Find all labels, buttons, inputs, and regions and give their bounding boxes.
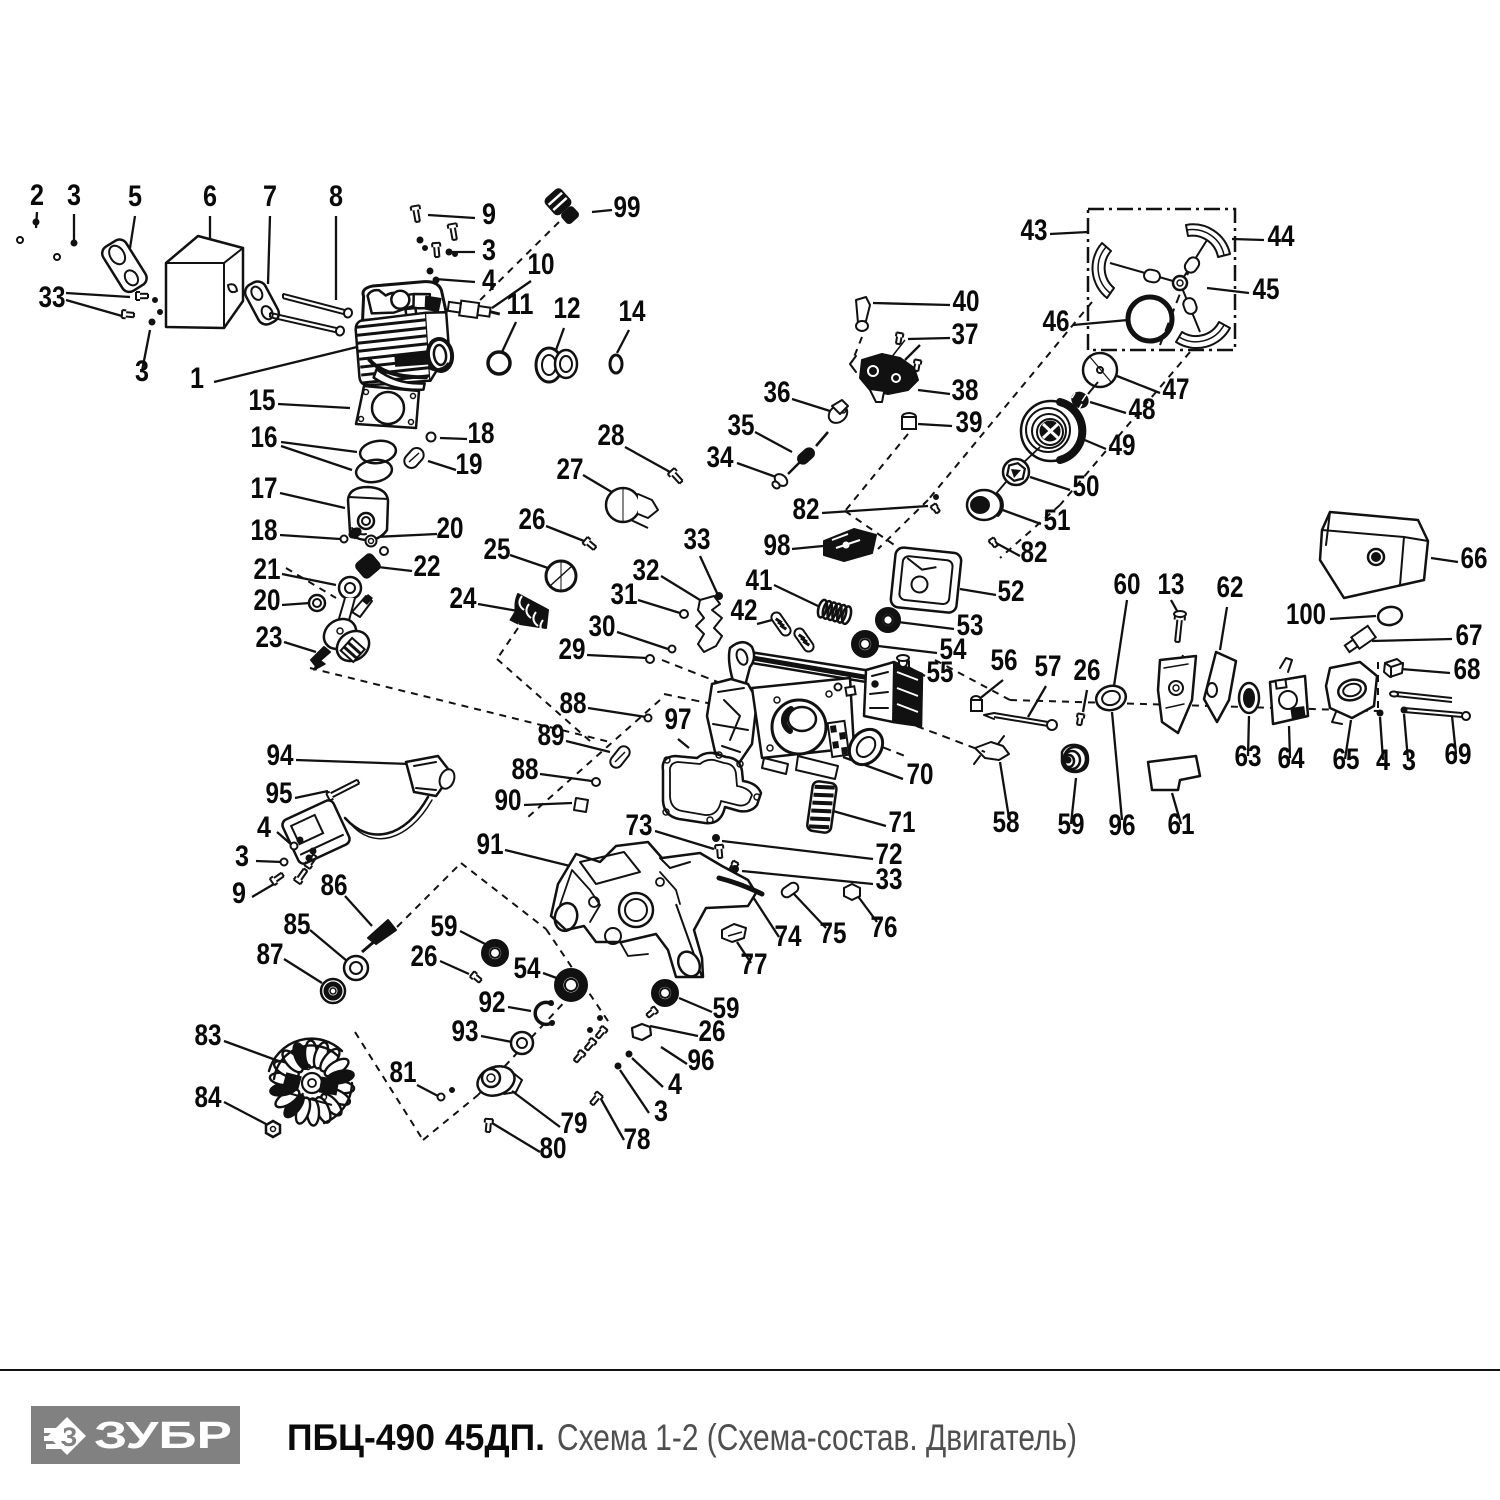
svg-text:97: 97 bbox=[665, 703, 692, 736]
svg-text:63: 63 bbox=[1235, 740, 1262, 773]
svg-text:4: 4 bbox=[257, 811, 271, 844]
svg-text:38: 38 bbox=[952, 374, 979, 407]
svg-text:65: 65 bbox=[1333, 743, 1360, 776]
svg-text:11: 11 bbox=[507, 288, 534, 321]
svg-text:26: 26 bbox=[411, 940, 438, 973]
svg-text:75: 75 bbox=[820, 917, 847, 950]
svg-text:3: 3 bbox=[654, 1095, 668, 1128]
svg-text:48: 48 bbox=[1129, 393, 1156, 426]
svg-text:29: 29 bbox=[559, 633, 586, 666]
svg-text:78: 78 bbox=[624, 1123, 651, 1156]
svg-text:51: 51 bbox=[1044, 504, 1071, 537]
svg-text:91: 91 bbox=[477, 828, 504, 861]
svg-text:59: 59 bbox=[431, 910, 458, 943]
svg-text:18: 18 bbox=[468, 417, 495, 450]
svg-text:35: 35 bbox=[728, 409, 755, 442]
svg-text:4: 4 bbox=[1376, 744, 1390, 777]
svg-text:18: 18 bbox=[251, 514, 278, 547]
svg-text:36: 36 bbox=[764, 376, 791, 409]
svg-text:74: 74 bbox=[775, 920, 802, 953]
svg-text:67: 67 bbox=[1456, 619, 1483, 652]
svg-text:89: 89 bbox=[538, 719, 565, 752]
svg-text:2: 2 bbox=[30, 179, 44, 212]
svg-text:3: 3 bbox=[67, 179, 81, 212]
svg-text:88: 88 bbox=[560, 687, 587, 720]
svg-text:45: 45 bbox=[1253, 273, 1280, 306]
svg-text:88: 88 bbox=[512, 753, 539, 786]
svg-text:95: 95 bbox=[266, 777, 293, 810]
svg-text:26: 26 bbox=[1074, 654, 1101, 687]
svg-text:14: 14 bbox=[619, 295, 646, 328]
svg-text:3: 3 bbox=[482, 234, 496, 267]
svg-text:70: 70 bbox=[907, 758, 934, 791]
svg-text:32: 32 bbox=[633, 554, 660, 587]
svg-text:47: 47 bbox=[1163, 373, 1190, 406]
svg-text:21: 21 bbox=[254, 553, 281, 586]
svg-text:42: 42 bbox=[731, 594, 758, 627]
svg-text:58: 58 bbox=[993, 806, 1020, 839]
svg-text:84: 84 bbox=[195, 1081, 222, 1114]
svg-text:99: 99 bbox=[614, 191, 641, 224]
svg-text:4: 4 bbox=[668, 1068, 682, 1101]
svg-text:80: 80 bbox=[540, 1132, 567, 1165]
svg-text:25: 25 bbox=[484, 533, 511, 566]
svg-text:9: 9 bbox=[482, 198, 496, 231]
svg-text:49: 49 bbox=[1109, 429, 1136, 462]
svg-text:76: 76 bbox=[871, 911, 898, 944]
svg-text:24: 24 bbox=[450, 582, 477, 615]
svg-text:41: 41 bbox=[746, 564, 773, 597]
svg-text:10: 10 bbox=[528, 248, 555, 281]
svg-text:68: 68 bbox=[1454, 653, 1481, 686]
svg-text:55: 55 bbox=[927, 656, 954, 689]
svg-text:71: 71 bbox=[889, 806, 916, 839]
svg-text:8: 8 bbox=[329, 180, 343, 213]
svg-text:Схема 1-2 (Схема-состав. Двига: Схема 1-2 (Схема-состав. Двигатель) bbox=[557, 1417, 1077, 1458]
svg-text:9: 9 bbox=[232, 877, 246, 910]
svg-text:20: 20 bbox=[254, 584, 281, 617]
svg-text:90: 90 bbox=[495, 784, 522, 817]
svg-text:19: 19 bbox=[456, 448, 483, 481]
svg-text:82: 82 bbox=[793, 493, 820, 526]
svg-text:100: 100 bbox=[1286, 598, 1326, 631]
svg-text:23: 23 bbox=[256, 621, 283, 654]
svg-text:3: 3 bbox=[135, 355, 149, 388]
svg-text:40: 40 bbox=[953, 285, 980, 318]
svg-text:5: 5 bbox=[128, 180, 142, 213]
svg-text:33: 33 bbox=[684, 523, 711, 556]
svg-text:93: 93 bbox=[452, 1015, 479, 1048]
svg-text:57: 57 bbox=[1035, 650, 1062, 683]
svg-text:4: 4 bbox=[482, 264, 496, 297]
svg-text:16: 16 bbox=[251, 421, 278, 454]
svg-text:44: 44 bbox=[1268, 220, 1295, 253]
svg-text:1: 1 bbox=[190, 362, 204, 395]
svg-text:50: 50 bbox=[1073, 470, 1100, 503]
svg-text:60: 60 bbox=[1114, 568, 1141, 601]
svg-text:59: 59 bbox=[1058, 808, 1085, 841]
svg-text:61: 61 bbox=[1168, 808, 1195, 841]
svg-text:17: 17 bbox=[251, 472, 278, 505]
svg-text:15: 15 bbox=[249, 384, 276, 417]
svg-text:98: 98 bbox=[764, 529, 791, 562]
svg-text:13: 13 bbox=[1158, 568, 1185, 601]
svg-text:72: 72 bbox=[876, 838, 903, 871]
svg-text:73: 73 bbox=[626, 809, 653, 842]
svg-text:3: 3 bbox=[1402, 744, 1416, 777]
svg-text:56: 56 bbox=[991, 644, 1018, 677]
svg-text:83: 83 bbox=[195, 1019, 222, 1052]
svg-text:69: 69 bbox=[1445, 738, 1472, 771]
svg-text:64: 64 bbox=[1278, 742, 1305, 775]
svg-text:92: 92 bbox=[479, 986, 506, 1019]
svg-text:82: 82 bbox=[1021, 536, 1048, 569]
svg-text:28: 28 bbox=[598, 419, 625, 452]
svg-text:77: 77 bbox=[741, 948, 768, 981]
svg-text:12: 12 bbox=[554, 292, 581, 325]
svg-text:34: 34 bbox=[707, 441, 734, 474]
svg-text:52: 52 bbox=[998, 575, 1025, 608]
svg-text:ПБЦ-490 45ДП.: ПБЦ-490 45ДП. bbox=[287, 1417, 545, 1458]
svg-text:6: 6 bbox=[203, 180, 217, 213]
svg-text:43: 43 bbox=[1021, 214, 1048, 247]
svg-text:37: 37 bbox=[952, 318, 979, 351]
svg-text:20: 20 bbox=[437, 512, 464, 545]
svg-text:59: 59 bbox=[713, 992, 740, 1025]
svg-text:30: 30 bbox=[589, 610, 616, 643]
svg-text:27: 27 bbox=[557, 453, 584, 486]
svg-text:54: 54 bbox=[514, 952, 541, 985]
svg-text:7: 7 bbox=[263, 180, 277, 213]
svg-text:96: 96 bbox=[688, 1044, 715, 1077]
svg-text:39: 39 bbox=[956, 406, 983, 439]
svg-text:87: 87 bbox=[257, 938, 284, 971]
svg-text:86: 86 bbox=[321, 869, 348, 902]
svg-text:81: 81 bbox=[390, 1056, 417, 1089]
svg-text:96: 96 bbox=[1109, 809, 1136, 842]
svg-text:33: 33 bbox=[39, 281, 66, 314]
svg-text:3: 3 bbox=[235, 840, 249, 873]
svg-text:85: 85 bbox=[284, 908, 311, 941]
svg-text:94: 94 bbox=[267, 739, 294, 772]
svg-text:62: 62 bbox=[1217, 571, 1244, 604]
svg-text:66: 66 bbox=[1461, 542, 1488, 575]
svg-text:46: 46 bbox=[1043, 305, 1070, 338]
svg-text:26: 26 bbox=[519, 503, 546, 536]
svg-text:ЗУБР: ЗУБР bbox=[94, 1415, 232, 1457]
svg-text:22: 22 bbox=[414, 550, 441, 583]
